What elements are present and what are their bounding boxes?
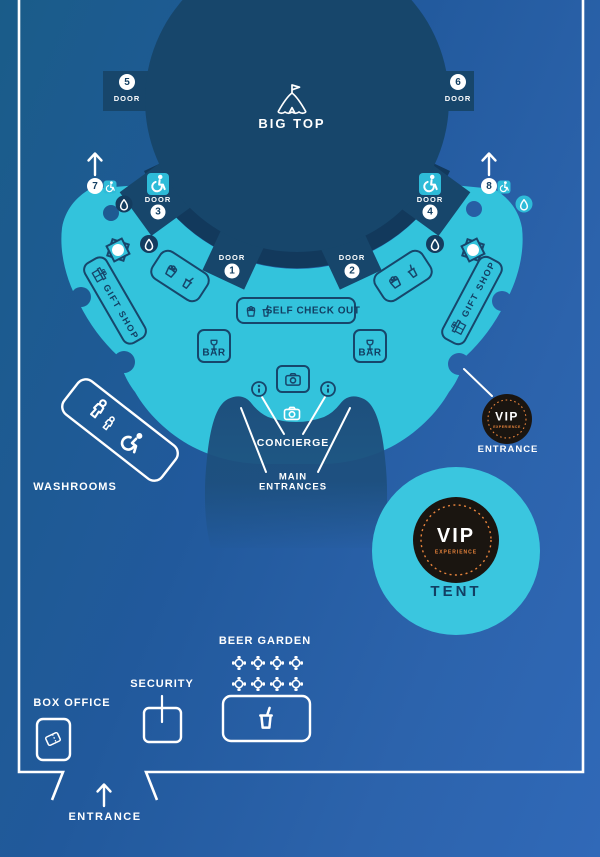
table-icon [270,677,284,691]
bar-right-label: BAR [358,348,381,359]
wheelchair-icon [120,427,146,454]
drink-icon [260,708,271,728]
child-person-icon [102,416,115,431]
main-entrances-label-line2: ENTRANCES [259,483,327,493]
vip-entrance-pointer [464,369,492,396]
door-8-number: 8 [481,178,497,194]
beer-garden-label: BEER GARDEN [219,635,311,647]
big-top-label: BIG TOP [258,117,325,131]
adult-person-icon [90,398,108,418]
vip-entrance-badge-subtitle: EXPERIENCE [493,426,521,430]
door-3-label: DOOR [145,196,172,204]
site-boundary-left [19,0,63,800]
beer-garden-stand [223,696,310,741]
box-office-area [37,719,70,760]
vip-entrance-label: ENTRANCE [478,445,539,455]
washrooms-label: WASHROOMS [33,481,117,493]
door-6-label: DOOR [445,95,472,103]
vip-entrance-badge-title: VIP [495,410,519,423]
door-4-number: 4 [423,205,438,220]
gift-icon [448,318,467,337]
table-icon [251,677,265,691]
vip-tent-label: TENT [430,584,481,601]
door-1-label: DOOR [219,254,246,262]
door-5-number: 5 [119,74,135,90]
door-5-label: DOOR [114,95,141,103]
exit-7-arrow-icon [89,154,102,176]
door-7-number: 7 [87,178,103,194]
gift-icon [90,265,109,284]
table-icon [270,656,284,670]
bar-left-label: BAR [202,348,225,359]
table-icon [289,677,303,691]
box-office-label: BOX OFFICE [33,697,110,709]
entrance-arrow-icon [98,785,111,807]
table-icon [232,677,246,691]
security-label: SECURITY [130,678,194,690]
entrance-label: ENTRANCE [68,811,141,823]
concierge-label: CONCIERGE [257,438,330,450]
table-icon [251,656,265,670]
venue-map: BIG TOP 5 DOOR 6 DOOR DOOR 3 DOOR 4 DOOR… [0,0,600,857]
self-checkout-label: SELF CHECK OUT [266,306,361,317]
door-1-number: 1 [225,264,240,279]
vip-tent-badge-subtitle: EXPERIENCE [435,550,477,556]
table-icon [232,656,246,670]
exit-8-arrow-icon [483,154,496,176]
door-6-number: 6 [450,74,466,90]
vip-tent-badge-title: VIP [437,525,475,547]
door-2-label: DOOR [339,254,366,262]
ticket-icon [45,732,61,746]
table-icon [289,656,303,670]
door-4-label: DOOR [417,196,444,204]
door-2-number: 2 [345,264,360,279]
door-3-number: 3 [151,205,166,220]
